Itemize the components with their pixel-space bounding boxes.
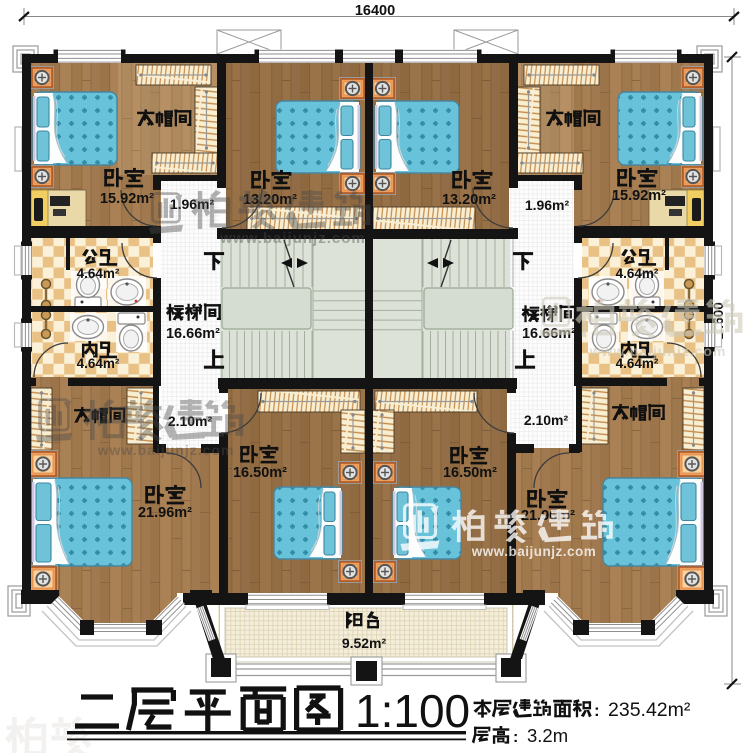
svg-text:16.50m²: 16.50m² <box>233 465 287 481</box>
svg-text:www.baijunjz.com: www.baijunjz.com <box>471 544 597 559</box>
svg-text:21.96m²: 21.96m² <box>138 505 192 521</box>
svg-text:www.baijunjz.com: www.baijunjz.com <box>97 442 235 458</box>
svg-text:16.50m²: 16.50m² <box>443 465 497 481</box>
svg-text:4.64m²: 4.64m² <box>616 266 659 281</box>
svg-text:16400: 16400 <box>355 3 395 19</box>
svg-text:15.92m²: 15.92m² <box>100 191 154 207</box>
svg-text:www.baijunjz.com: www.baijunjz.com <box>589 343 727 359</box>
svg-text:235.42m²: 235.42m² <box>608 699 691 721</box>
svg-text::: : <box>513 729 518 746</box>
svg-text:15.92m²: 15.92m² <box>612 188 666 204</box>
svg-text:13.20m²: 13.20m² <box>442 192 496 208</box>
svg-text:www.baijunjz.com: www.baijunjz.com <box>219 230 365 247</box>
svg-text::: : <box>594 701 600 720</box>
svg-text:16.66m²: 16.66m² <box>166 326 220 342</box>
svg-text:4.64m²: 4.64m² <box>77 356 120 371</box>
svg-text:9.52m²: 9.52m² <box>342 635 387 651</box>
svg-text:1:100: 1:100 <box>355 685 470 737</box>
svg-text:2.10m²: 2.10m² <box>524 412 569 428</box>
svg-text:1.96m²: 1.96m² <box>525 197 570 213</box>
svg-text:3.2m: 3.2m <box>527 725 568 746</box>
svg-text:4.64m²: 4.64m² <box>77 266 120 281</box>
